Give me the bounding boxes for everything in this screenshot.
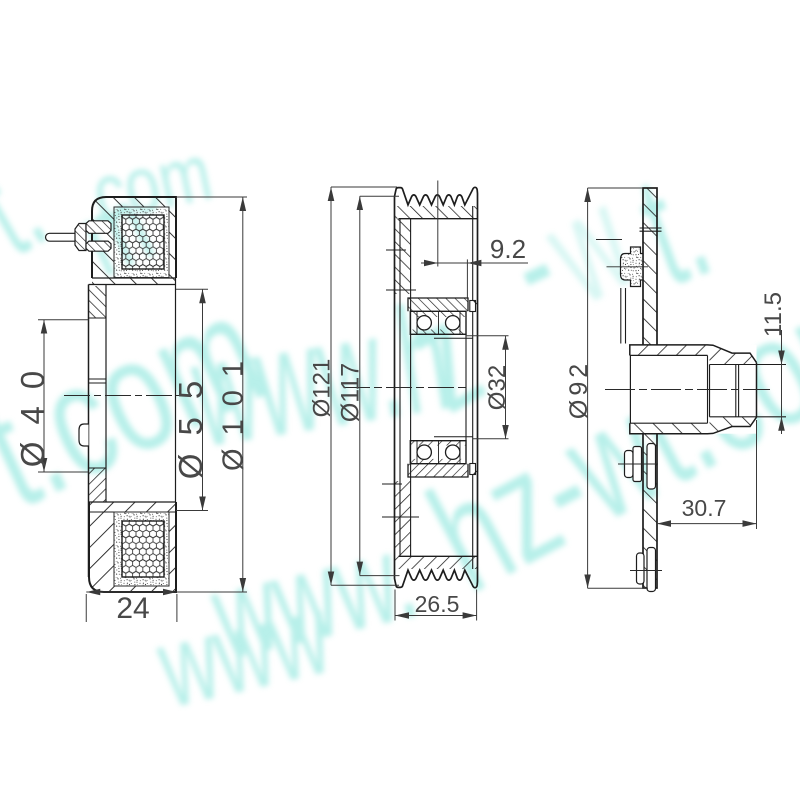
svg-text:30.7: 30.7	[682, 495, 727, 521]
svg-text:11.5: 11.5	[760, 292, 787, 337]
svg-text:Ø32: Ø32	[484, 365, 511, 410]
svg-text:Ø55: Ø55	[172, 363, 209, 479]
svg-text:Ø40: Ø40	[14, 354, 51, 467]
svg-text:9.2: 9.2	[490, 234, 526, 264]
svg-text:Ø92: Ø92	[565, 360, 593, 419]
svg-text:Ø121: Ø121	[309, 359, 336, 418]
svg-text:Ø101: Ø101	[217, 348, 249, 471]
svg-text:26.5: 26.5	[415, 591, 460, 617]
svg-text:24: 24	[116, 592, 149, 625]
svg-text:Ø117: Ø117	[336, 363, 364, 422]
